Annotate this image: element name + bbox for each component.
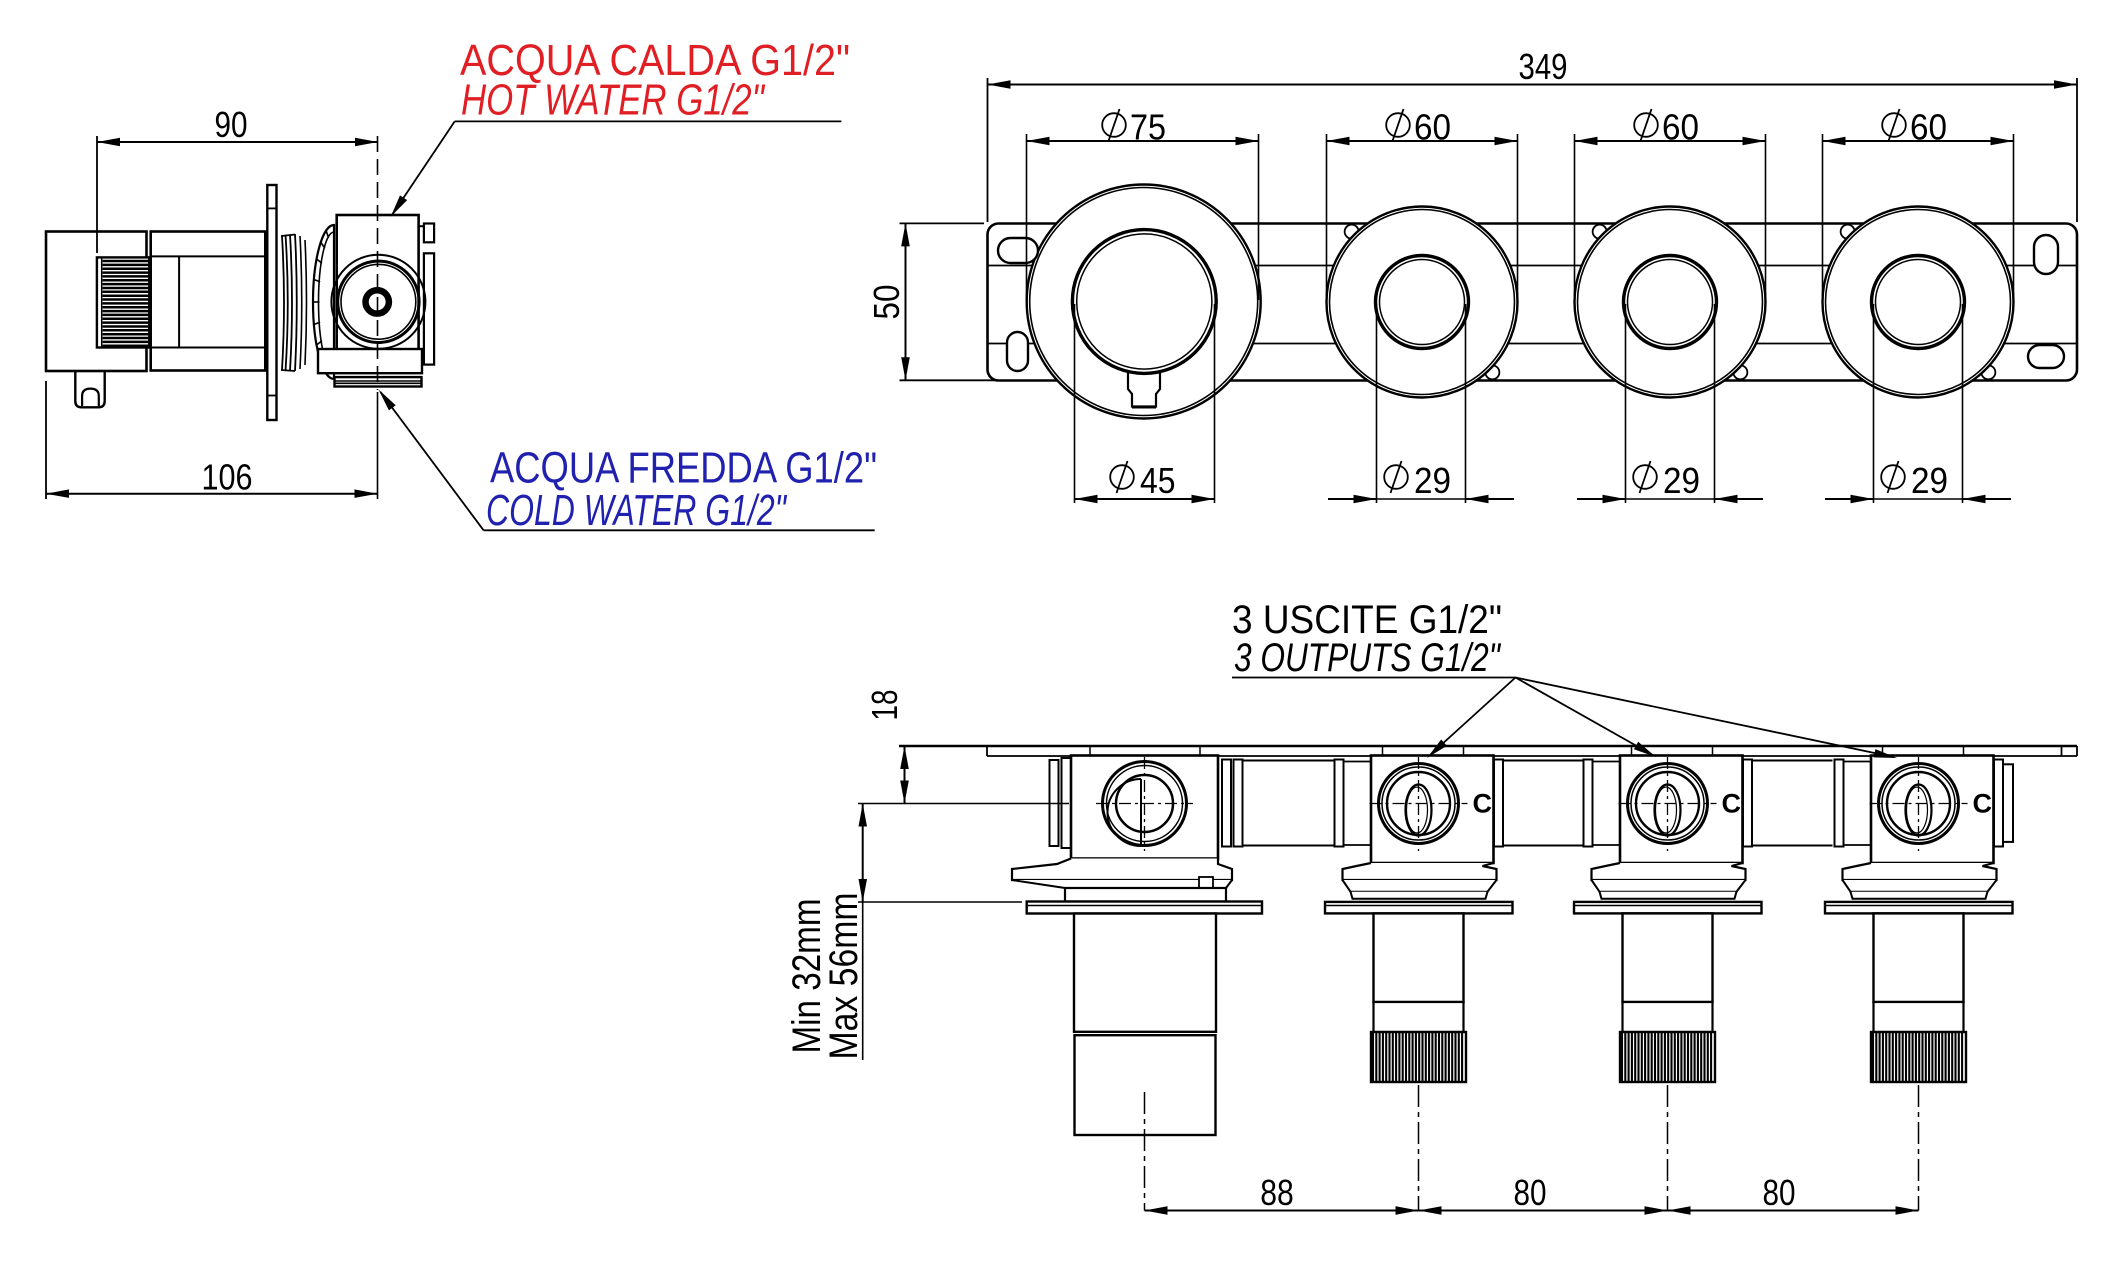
svg-text:18: 18	[864, 690, 905, 721]
svg-text:HOT WATER G1/2": HOT WATER G1/2"	[461, 76, 766, 125]
svg-text:COLD WATER G1/2": COLD WATER G1/2"	[486, 486, 788, 535]
svg-text:60: 60	[1910, 107, 1947, 148]
svg-text:50: 50	[866, 285, 907, 320]
svg-text:349: 349	[1519, 46, 1568, 87]
svg-text:75: 75	[1130, 107, 1166, 148]
svg-text:60: 60	[1662, 107, 1699, 148]
svg-text:29: 29	[1663, 460, 1700, 501]
svg-text:Max 56mm: Max 56mm	[822, 893, 866, 1060]
svg-text:C: C	[1722, 789, 1742, 819]
svg-text:90: 90	[215, 104, 248, 145]
svg-text:106: 106	[202, 457, 253, 498]
svg-text:29: 29	[1414, 460, 1451, 501]
svg-text:C: C	[1973, 789, 1993, 819]
svg-text:C: C	[1473, 789, 1493, 819]
svg-text:60: 60	[1414, 107, 1451, 148]
svg-text:29: 29	[1911, 460, 1948, 501]
svg-text:80: 80	[1763, 1172, 1796, 1213]
svg-text:45: 45	[1140, 460, 1176, 501]
svg-text:88: 88	[1260, 1172, 1294, 1213]
svg-text:80: 80	[1514, 1172, 1547, 1213]
svg-text:3 OUTPUTS G1/2": 3 OUTPUTS G1/2"	[1234, 636, 1501, 680]
